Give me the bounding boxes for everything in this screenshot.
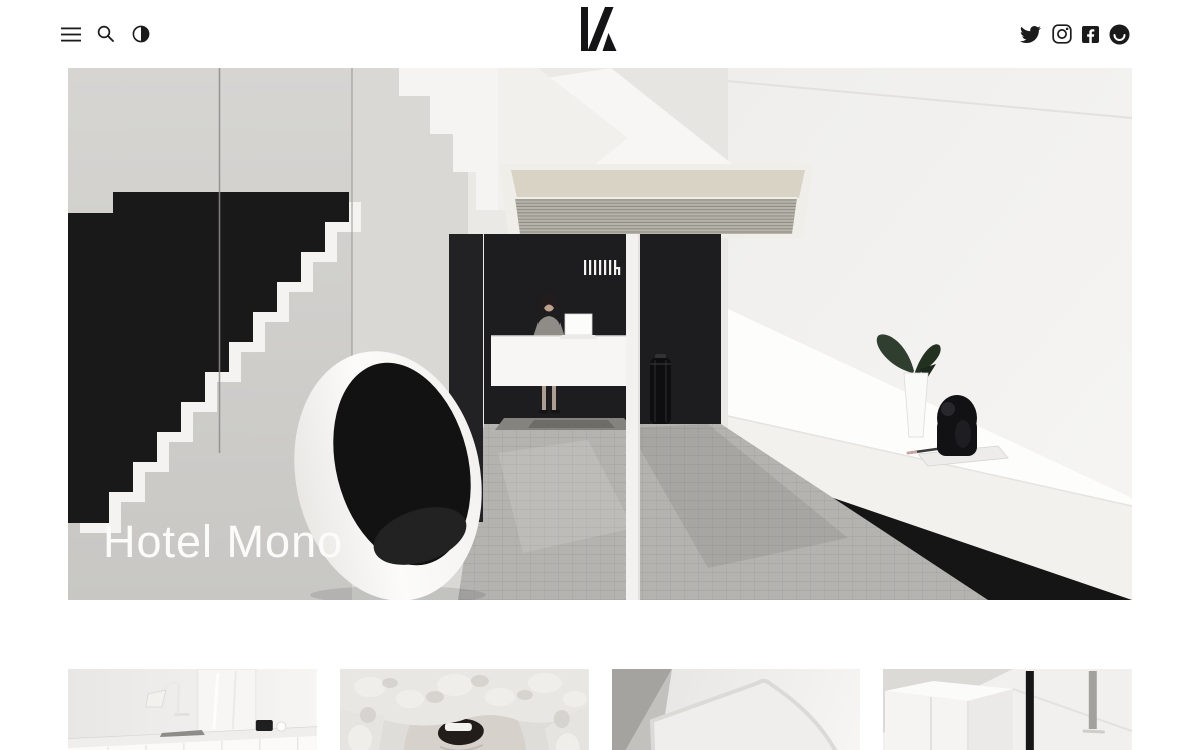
portrait-photo xyxy=(340,669,589,750)
contrast-icon[interactable] xyxy=(130,23,152,45)
instagram-icon[interactable] xyxy=(1051,24,1072,45)
mirror-photo xyxy=(612,669,861,750)
menu-icon[interactable] xyxy=(60,23,82,45)
gallery-item-furniture[interactable] xyxy=(883,669,1132,750)
twitter-glyph xyxy=(1020,24,1041,45)
facebook-glyph xyxy=(1082,26,1099,43)
header xyxy=(0,0,1200,68)
gallery-item-portrait[interactable] xyxy=(340,669,589,750)
gallery-item-mirror[interactable] xyxy=(612,669,861,750)
gallery-item-kitchen[interactable] xyxy=(68,669,317,750)
hero-project-link[interactable]: Hotel Mono xyxy=(68,68,1132,600)
hero-photo xyxy=(68,68,1132,600)
ello-glyph xyxy=(1109,24,1130,45)
coffee-machine xyxy=(937,395,977,456)
magnifier-glyph xyxy=(97,25,115,43)
monogram-glyph xyxy=(580,6,620,52)
search-icon[interactable] xyxy=(95,23,117,45)
half-circle-glyph xyxy=(132,25,150,43)
suitcase xyxy=(650,354,671,424)
ello-icon[interactable] xyxy=(1109,24,1130,45)
nav-left xyxy=(60,23,152,45)
furniture-photo xyxy=(883,669,1132,750)
nav-social xyxy=(1020,24,1130,45)
kitchen-photo xyxy=(68,669,317,750)
gallery-grid xyxy=(68,669,1132,750)
facebook-icon[interactable] xyxy=(1082,24,1099,45)
instagram-glyph xyxy=(1052,24,1072,44)
hamburger-glyph xyxy=(61,27,81,42)
site-logo[interactable] xyxy=(580,6,620,52)
twitter-icon[interactable] xyxy=(1020,24,1041,45)
